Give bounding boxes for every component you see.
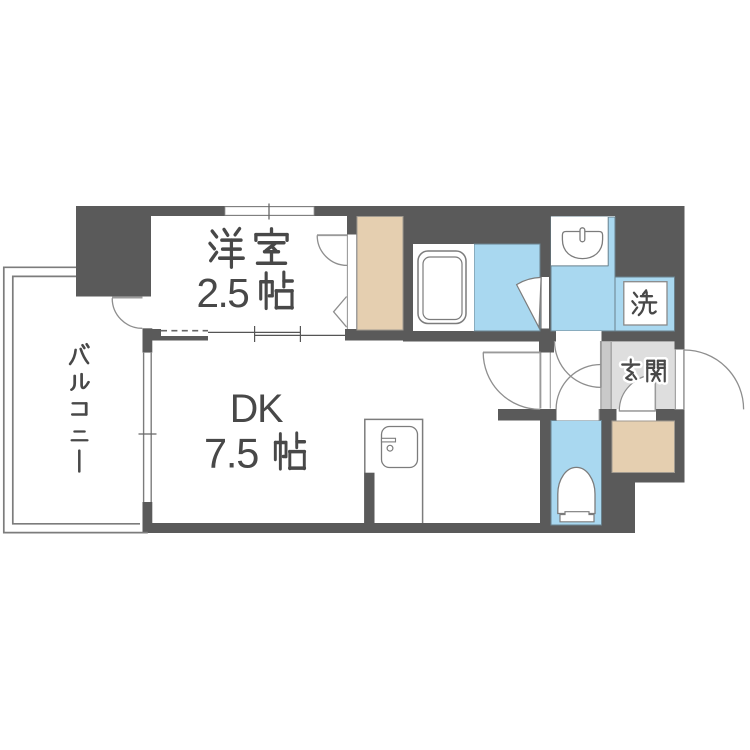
svg-text:7.5: 7.5	[204, 429, 258, 476]
svg-text:DK: DK	[230, 387, 283, 431]
svg-text:2.5: 2.5	[197, 270, 249, 316]
